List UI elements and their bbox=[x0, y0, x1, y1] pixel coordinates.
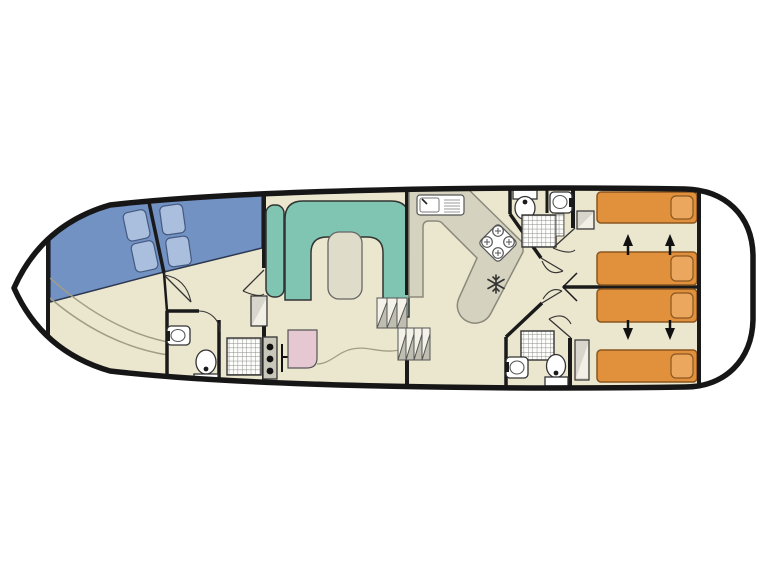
washbasin bbox=[166, 326, 190, 345]
single-bed bbox=[597, 252, 697, 285]
shower bbox=[227, 338, 261, 375]
shower bbox=[522, 215, 556, 247]
stern-cabins bbox=[563, 192, 699, 382]
pillow bbox=[671, 256, 693, 281]
pillow bbox=[671, 196, 693, 219]
pillow bbox=[671, 354, 693, 378]
wardrobe bbox=[577, 211, 594, 229]
washbasin bbox=[550, 192, 573, 213]
sink-drainer bbox=[417, 195, 464, 215]
pillow bbox=[159, 203, 186, 235]
floorplan-svg bbox=[0, 0, 768, 576]
towel-ladder bbox=[556, 214, 564, 236]
washbasin bbox=[505, 357, 528, 378]
wardrobe bbox=[251, 296, 267, 326]
single-bed bbox=[597, 192, 697, 223]
single-bed bbox=[597, 350, 697, 382]
single-bed bbox=[597, 289, 697, 322]
side-seat bbox=[266, 205, 284, 297]
shower bbox=[521, 331, 554, 360]
pink-worktop bbox=[288, 330, 317, 368]
saloon-table bbox=[328, 232, 362, 299]
wardrobe bbox=[575, 340, 589, 380]
pillow bbox=[165, 235, 192, 267]
pillow bbox=[671, 293, 693, 318]
boat-floorplan-canvas bbox=[0, 0, 768, 576]
